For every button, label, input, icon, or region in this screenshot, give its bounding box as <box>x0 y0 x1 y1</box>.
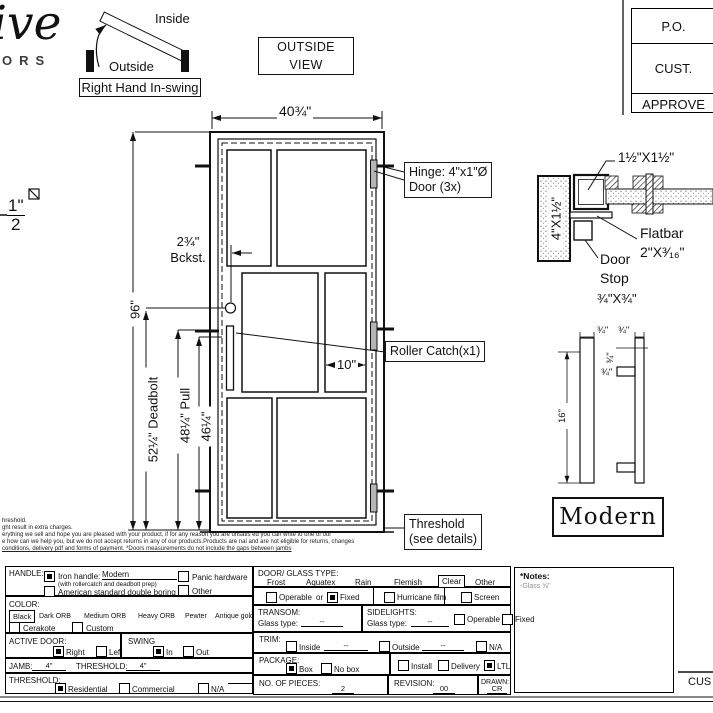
transom-glass-type-value[interactable]: -- <box>301 617 343 627</box>
iron-handle-subnote: (with rollercatch and deadbolt prep) <box>58 581 157 588</box>
threshold-na-checkbox[interactable] <box>198 683 209 694</box>
trim-outside-checkbox[interactable] <box>379 641 390 652</box>
form-section-notes: *Notes: -Glass ⅝" <box>514 567 674 693</box>
color-option-pewter[interactable]: Pewter <box>185 613 207 621</box>
sidelights-operable-label: Operable <box>467 615 500 624</box>
delivery-checkbox[interactable] <box>438 660 449 671</box>
disclaimer-line: e how can we help you, but we do not acc… <box>2 539 354 546</box>
flatbar-label1: Flatbar <box>638 226 686 241</box>
jamb-value[interactable]: 4" <box>32 661 66 671</box>
residential-label: Residential <box>68 685 108 694</box>
pieces-label: NO. OF PIECES: <box>259 679 320 688</box>
form-section-swing: SWING In Out <box>121 633 253 658</box>
transom-glass-type-label: Glass type: <box>258 619 298 628</box>
threshold-na-label: N/A <box>211 685 224 694</box>
logo-script: ive <box>0 0 61 50</box>
handle-width-dim1: ¾" <box>595 326 610 336</box>
handle-standoff-dim2: ¾" <box>599 368 614 378</box>
install-label: Install <box>411 662 432 671</box>
title-block: P.O. CUST. APPROVE <box>631 8 713 113</box>
ltl-label: LTL <box>497 662 510 671</box>
transom-label: TRANSOM: <box>258 608 300 617</box>
install-checkbox[interactable] <box>398 660 409 671</box>
disclaimer-line: conditions, delivery pdf and forms of pa… <box>2 546 292 553</box>
cerakote-label: Cerakote <box>23 624 55 633</box>
swing-outside-label: Outside <box>109 59 154 74</box>
trim-na-label: N/A <box>489 643 502 652</box>
door-height-dim: 96" <box>128 293 143 327</box>
form-section-revision: REVISION: 00 <box>388 675 478 695</box>
package-box-checkbox[interactable] <box>286 663 297 674</box>
custom-color-checkbox[interactable] <box>72 622 83 633</box>
handle-length-dim: 16" <box>558 403 568 429</box>
color-option-heavyorb[interactable]: Heavy ORB <box>138 613 175 621</box>
commercial-label: Commercial <box>132 685 175 694</box>
trim-na-checkbox[interactable] <box>476 641 487 652</box>
revision-value[interactable]: 00 <box>433 684 455 694</box>
handle-width-dim2: ¾" <box>616 326 631 336</box>
package-box-label: Box <box>299 665 313 674</box>
form-section-jamb: JAMB: 4" THRESHOLD: 4" <box>5 658 253 673</box>
custom-color-label: Custom <box>86 624 114 633</box>
other-handle-label: Other <box>192 587 212 596</box>
fixed-label: Fixed <box>340 593 360 602</box>
glass-aquatex[interactable]: Aquatex <box>306 578 335 587</box>
active-right-checkbox[interactable] <box>53 646 64 657</box>
threshold-callout: Threshold (see details) <box>404 514 482 550</box>
form-section-shipping: Install Delivery LTL <box>390 653 511 675</box>
roller-catch-callout: Roller Catch(x1) <box>385 341 485 362</box>
operable-label: Operable <box>279 593 312 602</box>
backset-dim: 2¾" <box>162 234 214 249</box>
notes-line[interactable]: -Glass ⅝" <box>520 583 551 591</box>
trim-inside-checkbox[interactable] <box>286 641 297 652</box>
tube-dim-label: 1½"X1½" <box>616 150 676 165</box>
active-left-checkbox[interactable] <box>96 646 107 657</box>
left-dim-fragment: 1" 2 <box>7 197 25 234</box>
sidelights-fixed-checkbox[interactable] <box>502 614 513 625</box>
threshold-section-label: THRESHOLD: <box>9 676 61 685</box>
glass-frost[interactable]: Frost <box>267 578 285 587</box>
drawn-value[interactable]: CR <box>487 684 507 694</box>
swing-caption-box: Right Hand In-swing <box>79 78 201 97</box>
threshold-callout-line2: (see details) <box>409 532 477 547</box>
logo-letters: ORS <box>2 53 51 68</box>
disclaimer-line: erything we sell and hope you are please… <box>2 532 331 539</box>
color-option-darkorb[interactable]: Dark ORB <box>39 613 71 621</box>
swing-in-label: In <box>166 648 173 657</box>
operable-or-label: or <box>316 593 323 602</box>
form-section-active-door: ACTIVE DOOR: Right Left <box>5 633 121 658</box>
divider <box>373 588 374 606</box>
form-section-drawn: DRAWN: CR <box>478 675 511 695</box>
disclaimer-line: ght result in extra charges. <box>2 525 73 532</box>
trim-inside-label: Inside <box>299 643 320 652</box>
ltl-checkbox[interactable] <box>484 660 495 671</box>
pull2-dim: 46¼" <box>199 407 214 447</box>
hinge-callout: Hinge: 4"x1"Ø Door (3x) <box>404 162 492 198</box>
form-section-trim: TRIM: Inside -- Outside -- N/A <box>253 632 511 653</box>
swing-post-right <box>181 50 189 72</box>
form-section-handle: HANDLE: Iron handle: Modern (with roller… <box>5 566 253 596</box>
door-width-dim: 40¾" <box>277 104 313 119</box>
glass-rain[interactable]: Rain <box>355 578 371 587</box>
trim-inside-value[interactable]: -- <box>324 641 368 651</box>
swing-out-checkbox[interactable] <box>183 646 194 657</box>
title-block-po[interactable]: P.O. <box>632 9 713 44</box>
pull-dim: 48¼" Pull <box>178 378 193 454</box>
commercial-checkbox[interactable] <box>119 683 130 694</box>
swing-post-left <box>86 50 94 72</box>
jamb-threshold-value[interactable]: 4" <box>126 661 160 671</box>
disclaimer-line: hreshold. <box>2 518 27 525</box>
iron-handle-checkbox[interactable] <box>44 571 55 582</box>
panic-hardware-label: Panic hardware <box>192 573 248 582</box>
sidelights-operable-checkbox[interactable] <box>454 614 465 625</box>
color-option-antiquegold[interactable]: Antique gold <box>215 613 254 621</box>
view-label-box: OUTSIDE VIEW <box>258 37 354 75</box>
delivery-label: Delivery <box>451 662 480 671</box>
swing-section-label: SWING <box>128 637 155 646</box>
form-section-color: COLOR: Black Dark ORB Medium ORB Heavy O… <box>5 596 253 633</box>
form-section-glass-type: DOOR/ GLASS TYPE: Frost Aquatex Rain Fle… <box>253 566 511 587</box>
jamb-label: JAMB: <box>9 662 33 671</box>
trim-label: TRIM: <box>259 635 281 644</box>
active-door-label: ACTIVE DOOR: <box>9 637 66 646</box>
screen-checkbox[interactable] <box>461 592 472 603</box>
handle-standoff-dim: ¾" <box>606 347 616 369</box>
swing-out-label: Out <box>196 648 209 657</box>
jamb-post-label: 4"X1½" <box>549 189 564 249</box>
threshold-callout-line1: Threshold <box>409 517 477 532</box>
form-section-glass-options: Operable or Fixed Hurricane film Screen <box>253 587 511 605</box>
color-section-label: COLOR: <box>9 600 40 609</box>
active-right-label: Right <box>66 648 85 657</box>
glass-flemish[interactable]: Flemish <box>394 578 422 587</box>
sidelights-glass-type-label: Glass type: <box>367 619 407 628</box>
deadbolt-dim: 52¼" Deadbolt <box>146 368 161 472</box>
fragment-numerator: 1" <box>7 197 25 216</box>
package-nobox-checkbox[interactable] <box>321 663 332 674</box>
fragment-denominator: 2 <box>11 216 20 234</box>
other-handle-checkbox[interactable] <box>178 585 189 596</box>
title-block-approve[interactable]: APPROVE <box>632 94 713 114</box>
hurricane-label: Hurricane film <box>397 593 446 602</box>
package-nobox-label: No box <box>334 665 359 674</box>
trim-outside-label: Outside <box>392 643 420 652</box>
sidelights-glass-type-value[interactable]: -- <box>411 617 449 627</box>
glass-other[interactable]: Other <box>475 578 495 587</box>
color-option-mediumorb[interactable]: Medium ORB <box>84 613 126 621</box>
jamb-threshold-label: THRESHOLD: <box>76 662 128 671</box>
handle-style-box: Modern <box>552 497 664 537</box>
glass-type-label: DOOR/ GLASS TYPE: <box>258 569 338 578</box>
cerakote-checkbox[interactable] <box>9 622 20 633</box>
trim-outside-value[interactable]: -- <box>422 641 464 651</box>
threshold-na-blank[interactable] <box>228 683 252 684</box>
swing-in-checkbox[interactable] <box>153 646 164 657</box>
operable-checkbox[interactable] <box>266 592 277 603</box>
screen-label: Screen <box>474 593 499 602</box>
notes-title: *Notes: <box>520 572 550 581</box>
flatbar-label2: 2"X³⁄₁₆" <box>638 245 686 260</box>
form-section-pieces: NO. OF PIECES: 2 <box>253 675 388 695</box>
hinge-callout-line2: Door (3x) <box>409 180 487 195</box>
fixed-checkbox[interactable] <box>327 592 338 603</box>
form-section-transom: TRANSOM: Glass type: -- <box>253 605 362 632</box>
form-section-threshold: THRESHOLD: Residential Commercial N/A <box>5 673 253 694</box>
panic-hardware-checkbox[interactable] <box>178 571 189 582</box>
handle-section-label: HANDLE: <box>9 569 44 578</box>
form-section-package: PACKAGE: Box No box <box>253 653 390 675</box>
signature-label: CUS <box>688 676 711 688</box>
iron-handle-value[interactable]: Modern <box>102 570 177 580</box>
doorstop-label1: Door <box>598 252 632 267</box>
revision-label: REVISION: <box>394 679 434 688</box>
doorstop-label3: ¾"X¾" <box>595 291 639 306</box>
pieces-value[interactable]: 2 <box>332 684 354 694</box>
hurricane-checkbox[interactable] <box>384 592 395 603</box>
title-block-cust[interactable]: CUST. <box>632 44 713 94</box>
residential-checkbox[interactable] <box>55 683 66 694</box>
sidelights-label: SIDELIGHTS: <box>367 608 417 617</box>
drawing-sheet: ive ORS Inside Outside Right Hand In-swi… <box>0 0 713 713</box>
iron-handle-label: Iron handle: <box>58 572 100 581</box>
swing-inside-label: Inside <box>155 11 190 26</box>
backset-label: Bckst. <box>162 250 214 265</box>
hinge-callout-line1: Hinge: 4"x1"Ø <box>409 165 487 180</box>
divider <box>444 588 445 606</box>
panel-dim: 10" <box>335 357 358 372</box>
doorstop-label2: Stop <box>598 271 631 286</box>
form-section-sidelights: SIDELIGHTS: Glass type: -- Operable Fixe… <box>362 605 511 632</box>
